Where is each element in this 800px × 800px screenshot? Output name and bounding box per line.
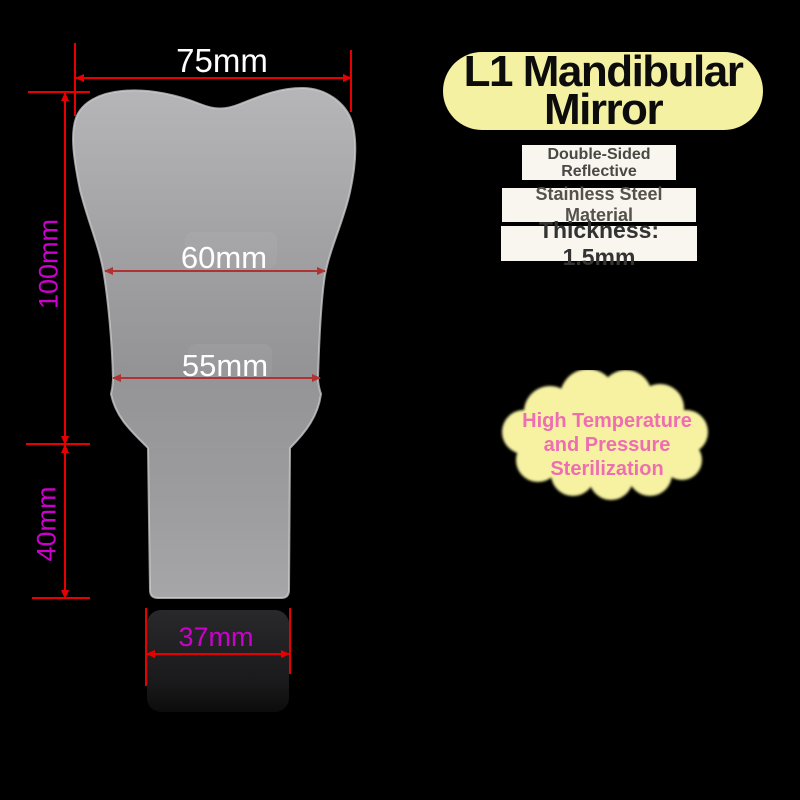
badge-double-sided: Double-Sided Reflective xyxy=(522,145,676,180)
badge-double-sided-line1: Double-Sided xyxy=(547,146,650,163)
dim-shared-witness xyxy=(26,443,90,445)
dim-37mm-line xyxy=(147,653,289,655)
dim-40mm-line xyxy=(64,445,66,598)
dim-75mm-witness-left xyxy=(74,43,76,116)
cloud-caption-line3: Sterilization xyxy=(522,457,692,481)
dim-100mm-label: 100mm xyxy=(34,219,65,309)
dim-37mm-witness-right xyxy=(289,608,291,674)
product-title-badge: L1 Mandibular Mirror xyxy=(443,52,763,130)
product-image-canvas: 75mm 100mm 40mm 60mm 55mm 37mm L1 Mandib… xyxy=(0,0,800,800)
badge-thickness: Thickness: 1.5mm xyxy=(501,226,697,261)
dim-75mm-witness-right xyxy=(350,50,352,112)
dim-37mm-label: 37mm xyxy=(156,622,276,653)
cloud-caption-line1: High Temperature xyxy=(522,409,692,433)
dim-55mm-label: 55mm xyxy=(160,348,290,384)
cloud-caption: High Temperature and Pressure Sterilizat… xyxy=(522,409,692,481)
cloud-caption-line2: and Pressure xyxy=(522,433,692,457)
mirror-blade xyxy=(73,88,355,598)
dim-37mm-witness-left xyxy=(145,608,147,686)
badge-double-sided-line2: Reflective xyxy=(561,163,637,180)
dim-40mm-label: 40mm xyxy=(32,486,63,561)
dim-75mm-label: 75mm xyxy=(157,42,287,80)
dim-100mm-witness-top xyxy=(28,91,90,93)
badge-thickness-text: Thickness: 1.5mm xyxy=(501,217,697,271)
dim-60mm-label: 60mm xyxy=(159,240,289,276)
product-title-line2: Mirror xyxy=(544,91,662,129)
dim-40mm-witness-bottom xyxy=(32,597,90,599)
